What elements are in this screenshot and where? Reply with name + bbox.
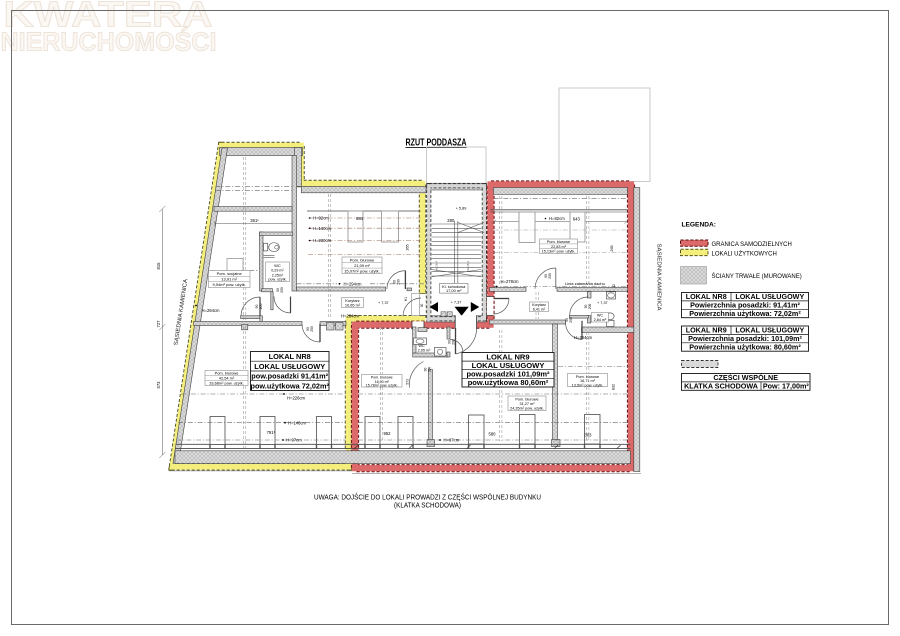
svg-text:643: 643 — [573, 217, 581, 222]
svg-text:Powierzchnia użytkowa: 72,02m²: Powierzchnia użytkowa: 72,02m² — [689, 309, 801, 318]
svg-text:9x 18,4: 9x 18,4 — [466, 261, 470, 271]
svg-text:SĄSIEDNIA KAMIENICA: SĄSIEDNIA KAMIENICA — [656, 244, 662, 311]
svg-text:24,35m² pow. użytk.: 24,35m² pow. użytk. — [510, 407, 544, 411]
svg-text:H=294cm: H=294cm — [344, 281, 363, 286]
svg-text:6,41 m²: 6,41 m² — [533, 308, 546, 312]
svg-text:H=278cm: H=278cm — [501, 279, 520, 284]
svg-text:WC: WC — [418, 344, 425, 348]
svg-text:280: 280 — [447, 218, 455, 223]
svg-text:H=82cm: H=82cm — [549, 216, 565, 221]
svg-text:Pom. socjalne: Pom. socjalne — [217, 271, 243, 276]
svg-text:+ 5,89: + 5,89 — [456, 207, 467, 211]
svg-text:361¹: 361¹ — [250, 218, 259, 223]
svg-text:15,07m² pow. użytk.: 15,07m² pow. użytk. — [344, 269, 380, 274]
svg-text:17,00 m²: 17,00 m² — [446, 288, 462, 293]
svg-text:2,95 m²: 2,95 m² — [418, 349, 432, 353]
svg-text:10,65 m²: 10,65 m² — [345, 303, 361, 308]
svg-text:727: 727 — [156, 320, 161, 328]
svg-text:815: 815 — [156, 262, 161, 270]
svg-text:Powierzchnia użytkowa: 80,60m²: Powierzchnia użytkowa: 80,60m² — [689, 342, 801, 351]
svg-text:584: 584 — [356, 216, 364, 221]
svg-text:H=264cm: H=264cm — [574, 335, 593, 340]
svg-text:13,91 m²: 13,91 m² — [221, 277, 237, 282]
svg-text:31,27 m²: 31,27 m² — [520, 402, 536, 406]
svg-text:pow.posadzki 91,41m²: pow.posadzki 91,41m² — [251, 372, 328, 381]
svg-text:580: 580 — [489, 432, 497, 437]
svg-text:13,5m² pow. użytk.: 13,5m² pow. użytk. — [572, 383, 604, 387]
svg-text:9x 18,4: 9x 18,4 — [435, 261, 439, 271]
svg-text:LOKAL NR9: LOKAL NR9 — [486, 352, 529, 361]
svg-text:15,13m² pow. użytk.: 15,13m² pow. użytk. — [542, 250, 576, 254]
svg-text:ŚCIANY TRWAŁE (MUROWANE): ŚCIANY TRWAŁE (MUROWANE) — [712, 272, 802, 280]
svg-text:H=97cm: H=97cm — [286, 438, 302, 443]
svg-text:9,94m² pow. użytk.: 9,94m² pow. użytk. — [213, 282, 246, 287]
svg-text:200: 200 — [259, 304, 263, 310]
svg-text:LEGENDA:: LEGENDA: — [682, 222, 716, 229]
svg-text:H=92cm: H=92cm — [313, 216, 329, 221]
svg-text:+ 7,37: + 7,37 — [378, 301, 389, 305]
svg-text:952: 952 — [384, 431, 392, 436]
svg-text:LOKALI UŻYTKOWYCH: LOKALI UŻYTKOWYCH — [712, 250, 777, 257]
svg-text:21,09 m²: 21,09 m² — [354, 263, 370, 268]
svg-text:Pom. biurowe: Pom. biurowe — [547, 240, 570, 244]
svg-text:pow.użytkowa 80,60m²: pow.użytkowa 80,60m² — [468, 378, 549, 387]
svg-text:WC: WC — [274, 263, 281, 268]
svg-text:200: 200 — [569, 317, 573, 323]
svg-text:200: 200 — [588, 304, 592, 310]
svg-text:791¹: 791¹ — [267, 430, 276, 435]
svg-text:(KLATKA SCHODOWA): (KLATKA SCHODOWA) — [394, 500, 461, 509]
svg-text:GRANICA SAMODZIELNYCH: GRANICA SAMODZIELNYCH — [712, 242, 792, 248]
svg-text:303: 303 — [585, 433, 593, 438]
svg-text:90: 90 — [420, 304, 424, 308]
svg-text:200: 200 — [396, 279, 400, 285]
svg-text:H=264cm: H=264cm — [341, 314, 360, 319]
svg-text:200: 200 — [280, 287, 284, 293]
svg-text:200: 200 — [310, 326, 314, 332]
svg-text:2,84 m²: 2,84 m² — [594, 318, 607, 322]
svg-text:H=230cm: H=230cm — [313, 238, 332, 243]
svg-text:KLATKA SCHODOWA: KLATKA SCHODOWA — [684, 382, 758, 391]
svg-text:0,29 m²: 0,29 m² — [271, 269, 284, 273]
svg-text:Pow: 17,00m²: Pow: 17,00m² — [763, 382, 810, 391]
svg-text:Pom. biurowe: Pom. biurowe — [350, 258, 375, 263]
svg-text:LOKAL USŁUGOWY: LOKAL USŁUGOWY — [254, 362, 325, 371]
svg-text:H=140cm: H=140cm — [313, 226, 332, 231]
svg-text:Linia załamania dachu: Linia załamania dachu — [565, 281, 605, 286]
svg-text:200: 200 — [427, 367, 431, 373]
svg-text:832: 832 — [612, 384, 616, 390]
svg-text:H1: H1 — [404, 297, 408, 301]
svg-text:H=294cm: H=294cm — [202, 308, 221, 313]
svg-text:265: 265 — [405, 244, 409, 250]
svg-text:573: 573 — [156, 381, 161, 389]
svg-text:15,78m² pow. użytk.: 15,78m² pow. użytk. — [366, 384, 398, 388]
svg-text:+ 7,37: + 7,37 — [451, 301, 462, 305]
svg-text:22,83 m²: 22,83 m² — [551, 245, 567, 249]
svg-text:H=146cm: H=146cm — [288, 420, 307, 425]
svg-text:265: 265 — [610, 245, 614, 251]
svg-text:200: 200 — [451, 339, 455, 345]
svg-text:H=97cm: H=97cm — [444, 438, 460, 443]
svg-text:pow.użytkowa 72,02m²: pow.użytkowa 72,02m² — [250, 381, 329, 390]
svg-text:573: 573 — [406, 379, 410, 385]
svg-text:+ 7,37: + 7,37 — [597, 301, 608, 305]
svg-text:Pom. biurowe: Pom. biurowe — [515, 397, 538, 401]
svg-text:H=226cm: H=226cm — [287, 396, 306, 401]
svg-text:200: 200 — [548, 273, 552, 279]
svg-text:33,68m² pow. użytk.: 33,68m² pow. użytk. — [209, 381, 244, 386]
svg-text:LOKAL NR8: LOKAL NR8 — [269, 352, 311, 361]
svg-text:NIERUCHOMOŚCI: NIERUCHOMOŚCI — [1, 27, 217, 57]
svg-text:12: 12 — [612, 284, 616, 288]
svg-text:pow. użytk.: pow. użytk. — [268, 278, 286, 282]
